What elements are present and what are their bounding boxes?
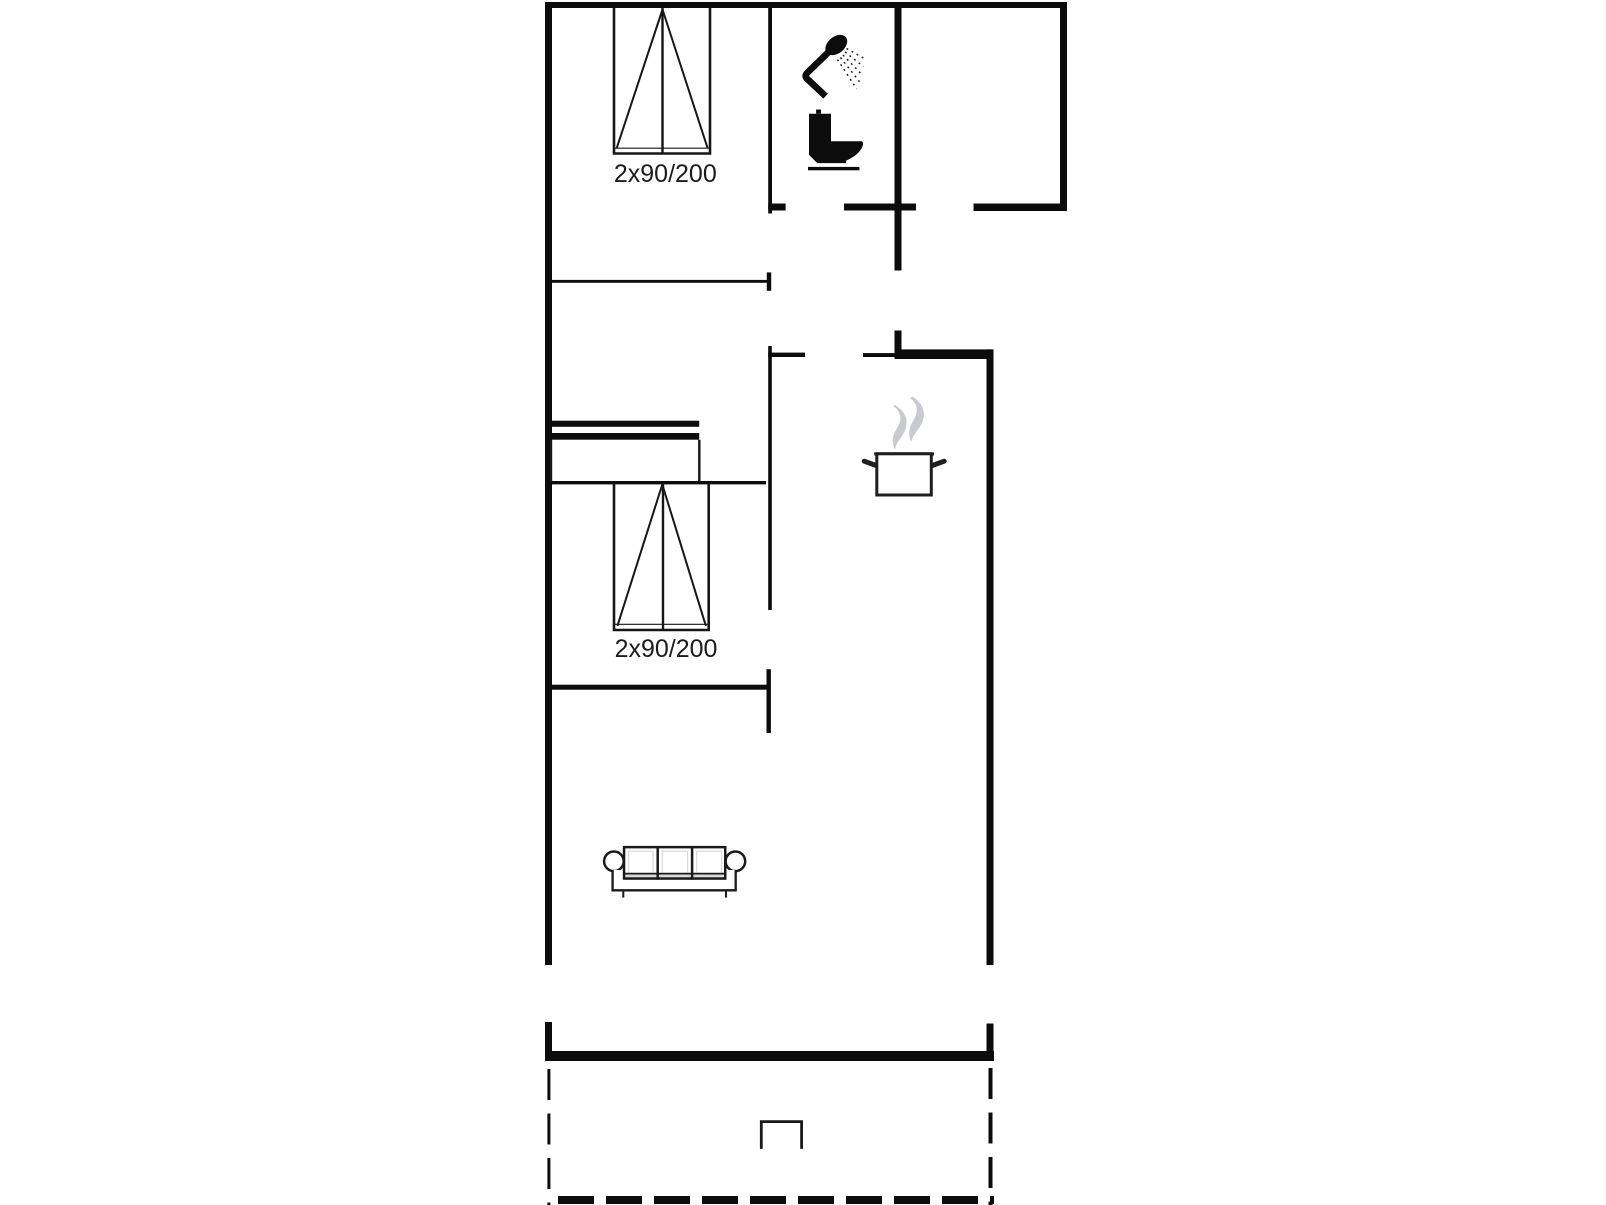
svg-text:2x90/200: 2x90/200 (614, 160, 717, 188)
svg-text:2x90/200: 2x90/200 (615, 635, 718, 663)
